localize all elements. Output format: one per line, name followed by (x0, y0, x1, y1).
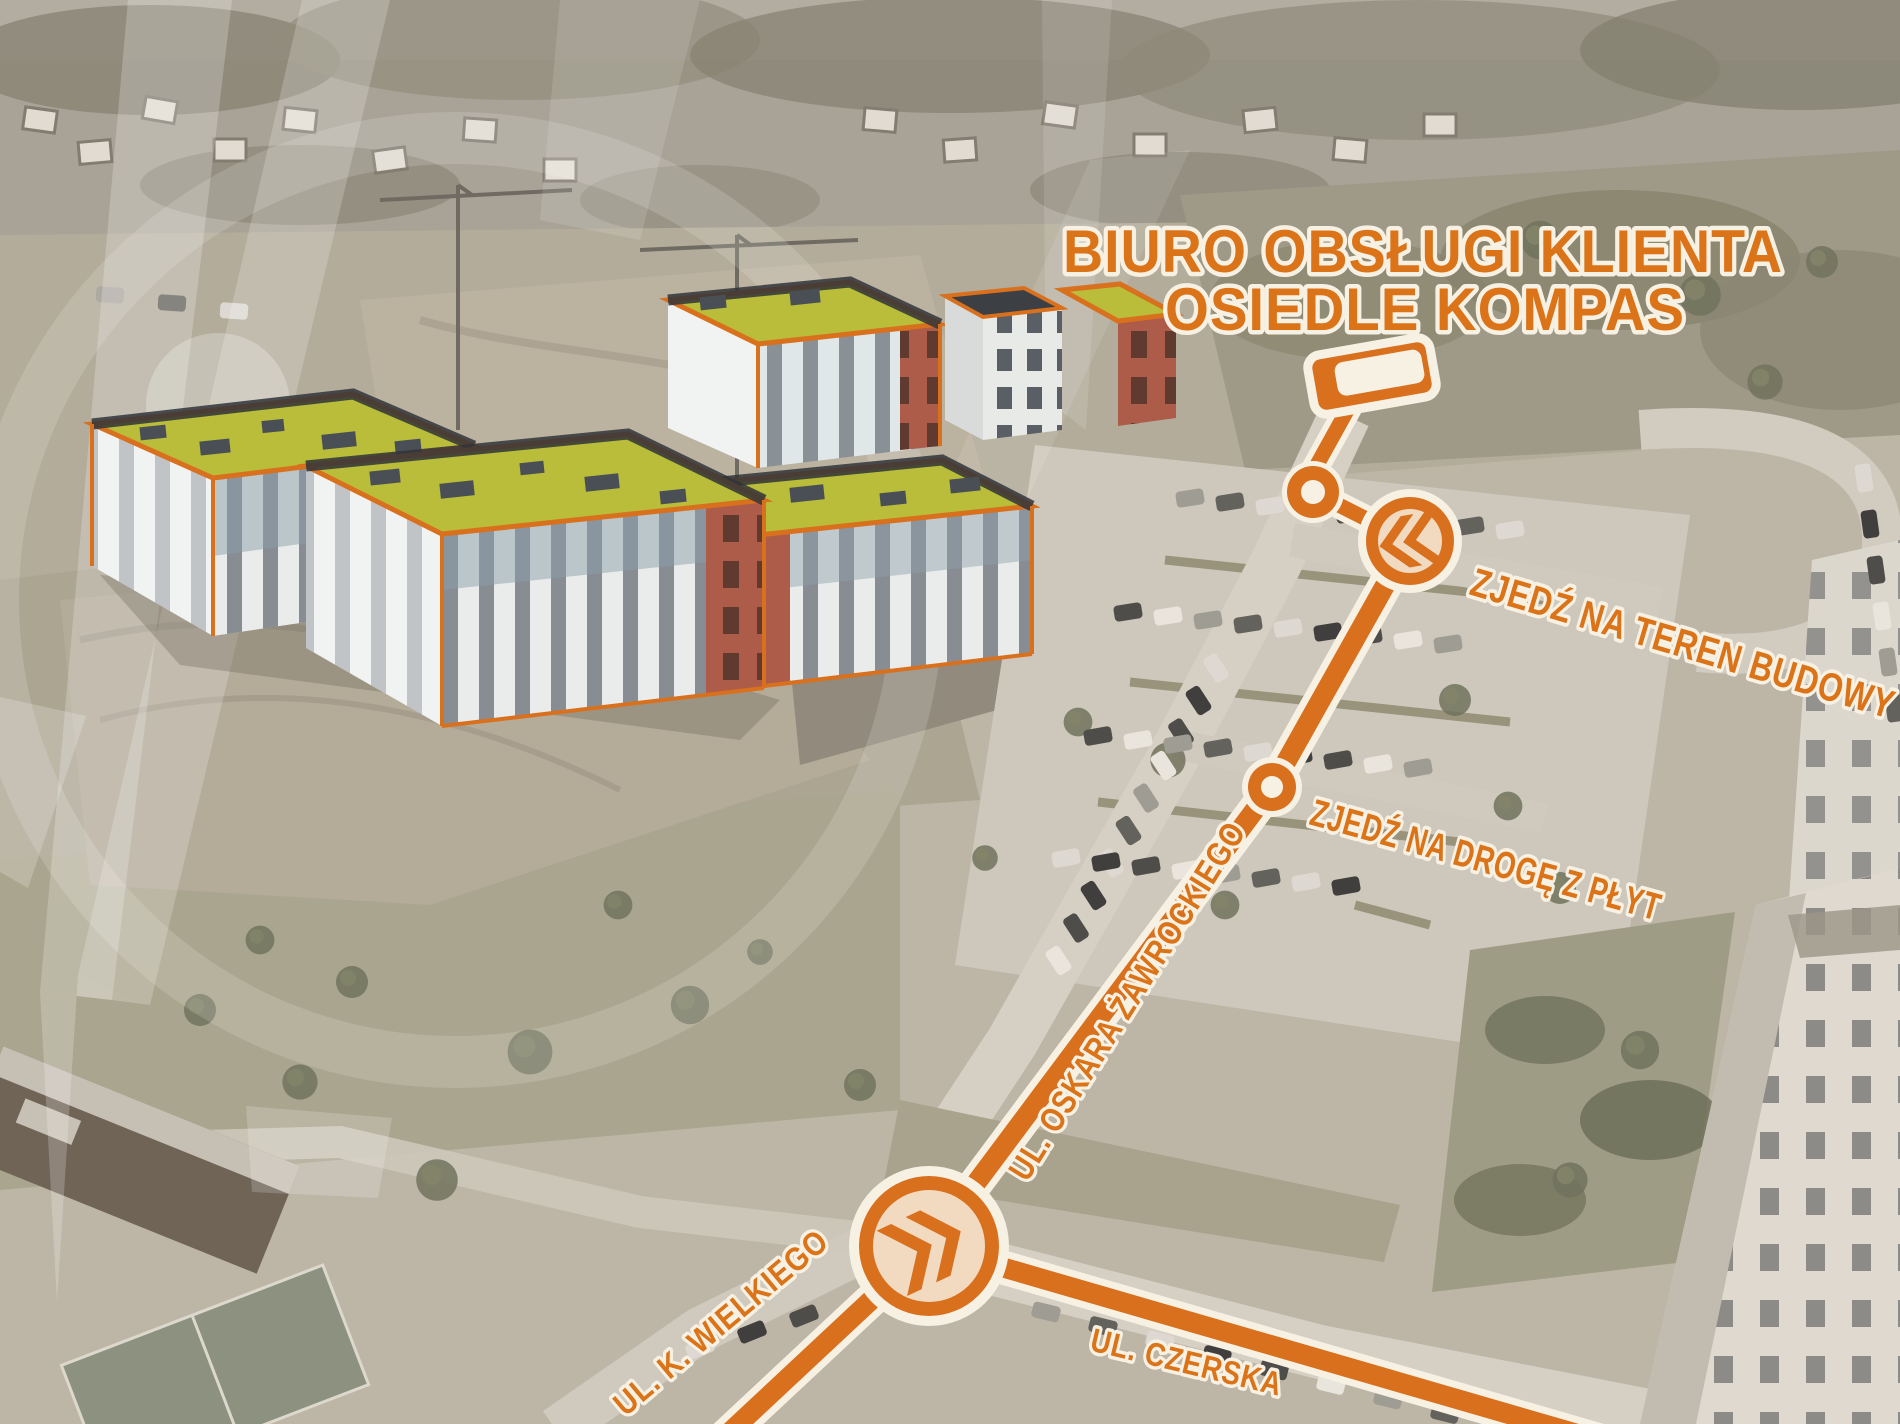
route-node-office (1282, 461, 1344, 523)
route-node-droga (1242, 757, 1302, 817)
map-title-line1: BIURO OBSŁUGI KLIENTA (1063, 218, 1783, 285)
site-access-map: BIURO OBSŁUGI KLIENTA OSIEDLE KOMPAS ZJE… (0, 0, 1900, 1424)
turn-marker-teren-budowy (1358, 489, 1462, 593)
turn-marker-junction (849, 1166, 1009, 1326)
map-title-line2: OSIEDLE KOMPAS (1165, 276, 1685, 343)
